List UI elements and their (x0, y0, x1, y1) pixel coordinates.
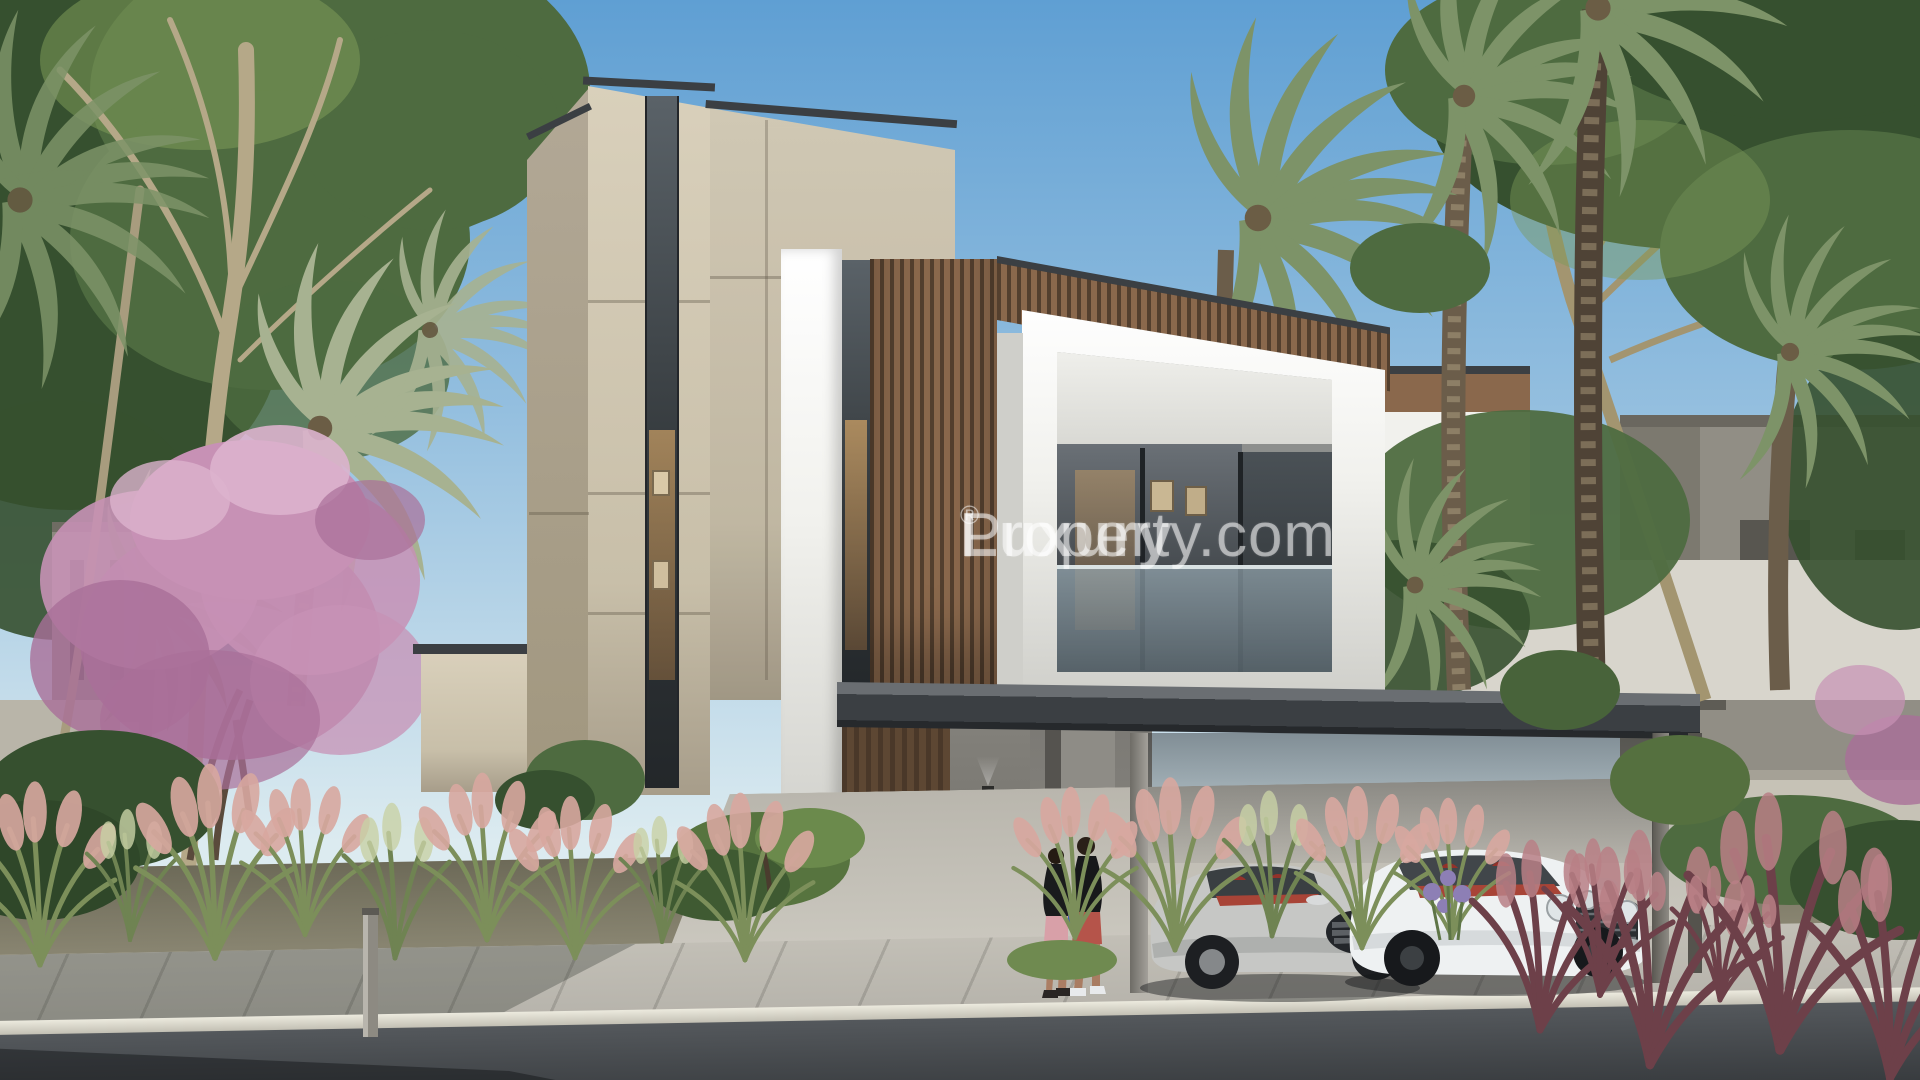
ornamental-grasses-right (1008, 777, 1515, 950)
registered-trademark-symbol: ® (960, 500, 980, 531)
luxury-villa-exterior-render: LuxuryProperty.com® (0, 0, 1920, 1080)
watermark-brand-light: Property.com (960, 500, 1336, 571)
bollard-light (362, 908, 379, 1037)
